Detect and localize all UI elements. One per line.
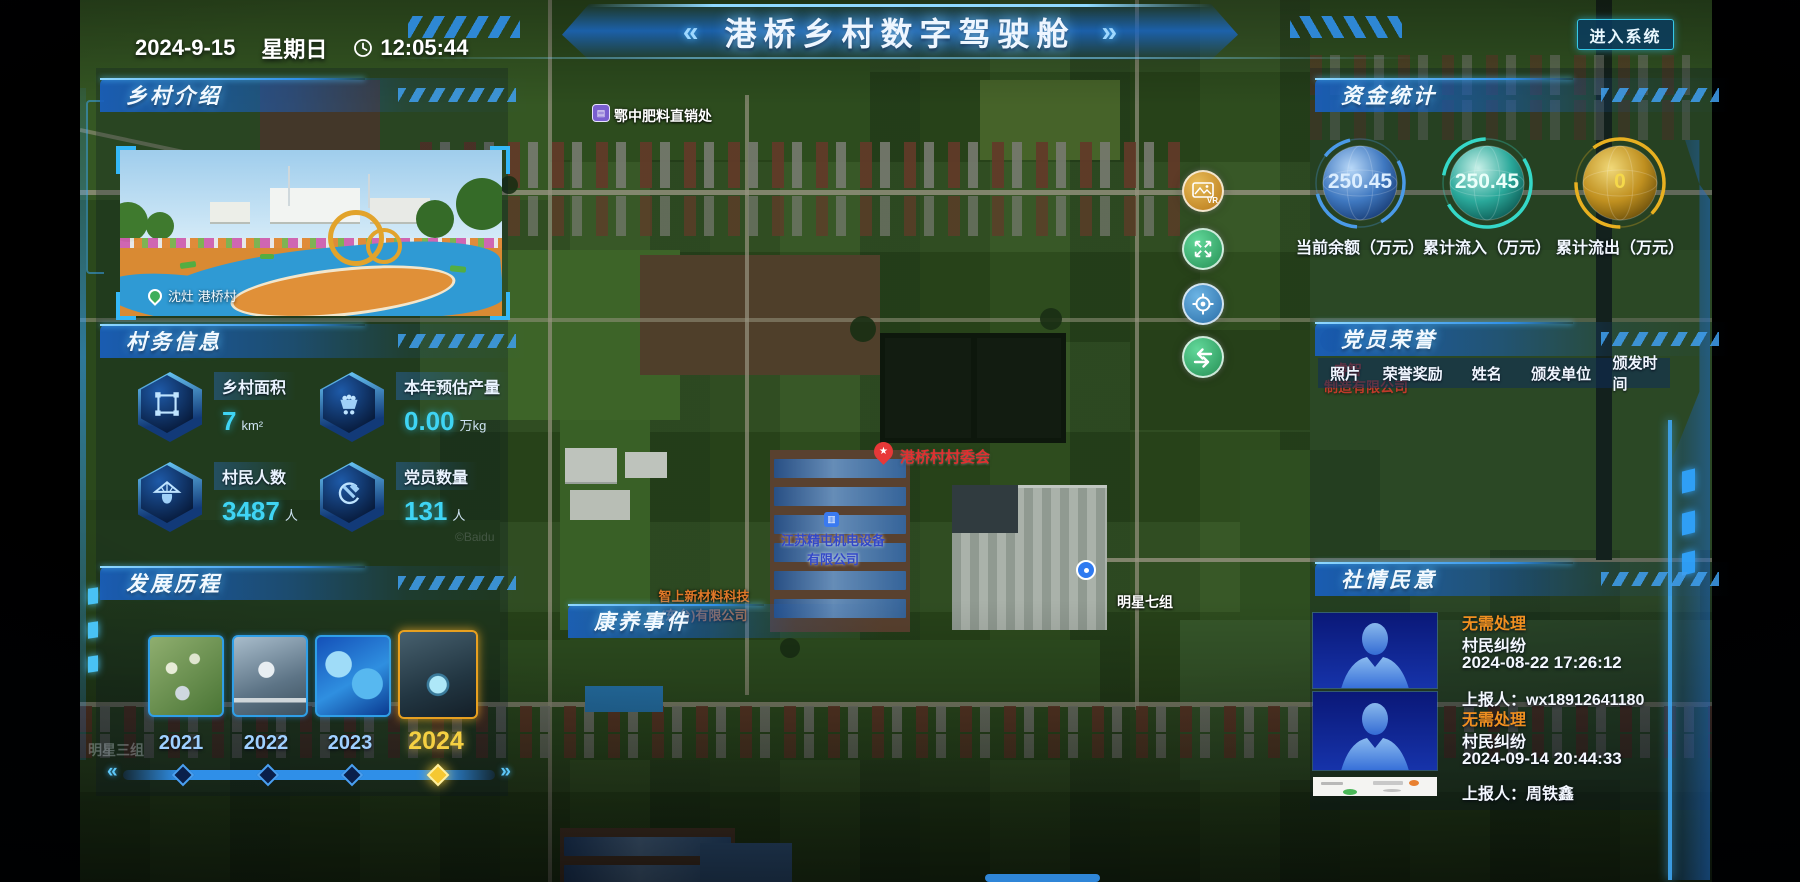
timeline-prev-icon[interactable]: « xyxy=(107,761,118,783)
map-event-banner: 康养事件 xyxy=(568,604,884,638)
fullscreen-expand-button[interactable] xyxy=(1182,228,1224,270)
villager-icon xyxy=(152,479,182,509)
fund-outflow-value: 0 xyxy=(1570,170,1670,194)
section-title: 发展历程 xyxy=(126,568,222,598)
enter-system-button[interactable]: 进入系统 xyxy=(1577,19,1674,50)
section-header-stripes xyxy=(1601,332,1719,346)
chevron-right-icon: » xyxy=(1102,16,1118,48)
sentiment-item-1-status: 无需处理 xyxy=(1462,610,1526,634)
sentiment-item-2-status: 无需处理 xyxy=(1462,706,1526,730)
fund-gauge-outflow: 0 xyxy=(1570,133,1670,233)
location-pin-icon xyxy=(145,286,165,306)
fund-gauge-inflow: 250.45 xyxy=(1437,133,1537,233)
poi-mingxing7-label: 明星七组 xyxy=(1117,592,1173,612)
clock-icon xyxy=(353,38,373,58)
map-bottom-decoration xyxy=(985,874,1100,882)
locate-button[interactable] xyxy=(1182,283,1224,325)
column-name: 姓名 xyxy=(1472,363,1531,384)
timeline-next-icon[interactable]: » xyxy=(500,761,511,783)
section-header-stripes xyxy=(398,576,516,590)
column-issuer: 颁发单位 xyxy=(1531,363,1612,384)
header-stripes-right xyxy=(1290,16,1402,38)
cart-icon xyxy=(334,389,364,419)
purple-shop-icon[interactable]: ▤ xyxy=(592,104,610,122)
section-sentiment: 社情民意 xyxy=(1315,562,1731,596)
section-title: 资金统计 xyxy=(1341,80,1437,110)
page-title: 港桥乡村数字驾驶舱 xyxy=(724,9,1075,55)
poi-mingxing7-marker[interactable] xyxy=(1076,560,1096,580)
photo-caption: 沈灶 港桥村 xyxy=(148,286,237,305)
photo-corner xyxy=(490,146,510,174)
sentiment-item-2-reporter: 上报人：周铁鑫 xyxy=(1462,780,1574,804)
fund-gauge-balance: 250.45 xyxy=(1310,133,1410,233)
header-glow-line xyxy=(380,57,1420,59)
current-date: 2024-9-15 xyxy=(135,35,235,61)
sentiment-item-2-thumbnail[interactable] xyxy=(1313,692,1437,770)
sentiment-item-1-time: 2024-08-22 17:26:12 xyxy=(1462,653,1622,673)
blue-circle-icon[interactable] xyxy=(1076,560,1096,580)
sentiment-item-3-thumbnail[interactable] xyxy=(1313,777,1437,796)
layer-switch-button[interactable] xyxy=(1182,336,1224,378)
section-title: 村务信息 xyxy=(126,326,222,356)
section-title: 党员荣誉 xyxy=(1341,324,1437,354)
fund-inflow-value: 250.45 xyxy=(1437,170,1537,194)
swap-arrows-icon xyxy=(1191,346,1215,368)
year-2023[interactable]: 2023 xyxy=(315,732,385,755)
year-2021[interactable]: 2021 xyxy=(146,732,216,755)
person-silhouette-icon xyxy=(1313,692,1437,770)
party-honor-table-header: 照片 荣誉奖励 姓名 颁发单位 颁发时间 xyxy=(1318,358,1670,388)
title-banner: « 港桥乡村数字驾驶舱 » xyxy=(562,4,1238,60)
development-thumb-2023[interactable] xyxy=(315,635,391,717)
section-title: 社情民意 xyxy=(1341,564,1437,594)
map-event-label: 康养事件 xyxy=(594,606,690,636)
vr-label: VR xyxy=(1207,196,1218,205)
current-weekday: 星期日 xyxy=(261,32,327,64)
section-party-honor: 党员荣誉 xyxy=(1315,322,1731,356)
stat-party-member-count: 党员数量 131人 xyxy=(320,462,500,532)
section-header-stripes xyxy=(398,88,516,102)
poi-mingxing3-label: 明星三组 xyxy=(88,740,144,760)
column-photo: 照片 xyxy=(1318,363,1383,384)
section-title: 乡村介绍 xyxy=(126,80,222,110)
section-header-stripes xyxy=(398,334,516,348)
poi-jingtun-marker[interactable]: ▥ xyxy=(824,512,839,527)
column-issue-date: 颁发时间 xyxy=(1613,352,1670,394)
poi-committee-marker[interactable]: ★ xyxy=(874,442,893,461)
stat-estimated-output: 本年预估产量 0.00万kg xyxy=(320,372,500,442)
photo-corner xyxy=(116,292,136,320)
area-icon xyxy=(152,389,182,419)
poi-jingtun-label: 江苏精屯机电设备 有限公司 xyxy=(768,530,898,568)
stat-villager-count: 村民人数 3487人 xyxy=(138,462,318,532)
fund-outflow-label: 累计流出（万元） xyxy=(1540,234,1700,258)
poi-fertilizer-label: 鄂中肥料直销处 xyxy=(614,106,712,126)
section-funds: 资金统计 xyxy=(1315,78,1731,112)
development-thumb-2024[interactable] xyxy=(398,630,478,719)
party-icon xyxy=(334,479,364,509)
year-2024[interactable]: 2024 xyxy=(401,727,471,756)
red-pin-icon[interactable]: ★ xyxy=(870,438,897,465)
photo-corner xyxy=(116,146,136,174)
section-header-stripes xyxy=(1601,88,1719,102)
sentiment-item-2-time: 2024-09-14 20:44:33 xyxy=(1462,749,1622,769)
vr-panorama-button[interactable]: VR xyxy=(1182,170,1224,212)
column-award: 荣誉奖励 xyxy=(1383,363,1472,384)
sentiment-item-1-thumbnail[interactable] xyxy=(1313,613,1437,688)
chevron-left-icon: « xyxy=(683,16,699,48)
fund-balance-value: 250.45 xyxy=(1310,170,1410,194)
section-village-info: 村务信息 xyxy=(100,324,528,358)
development-thumb-2021[interactable] xyxy=(148,635,224,717)
header-stripes-left xyxy=(408,16,520,38)
top-header: 2024-9-15 星期日 12:05:44 « 港桥乡村数字驾驶舱 » 进入系… xyxy=(0,0,1800,70)
poi-committee-label: 港桥村村委会 xyxy=(900,446,990,467)
timeline-slider[interactable]: « » xyxy=(123,770,495,780)
crosshair-icon xyxy=(1191,292,1215,316)
development-thumb-2022[interactable] xyxy=(232,635,308,717)
section-header-stripes xyxy=(1601,572,1719,586)
expand-icon xyxy=(1192,238,1214,260)
person-silhouette-icon xyxy=(1313,613,1437,688)
stat-village-area: 乡村面积 7km² xyxy=(138,372,318,442)
section-development: 发展历程 xyxy=(100,566,528,600)
section-village-intro: 乡村介绍 xyxy=(100,78,528,112)
photo-corner xyxy=(490,292,510,320)
blue-building-icon[interactable]: ▥ xyxy=(824,512,839,527)
year-2022[interactable]: 2022 xyxy=(231,732,301,755)
poi-fertilizer-marker[interactable]: ▤ xyxy=(592,104,610,122)
